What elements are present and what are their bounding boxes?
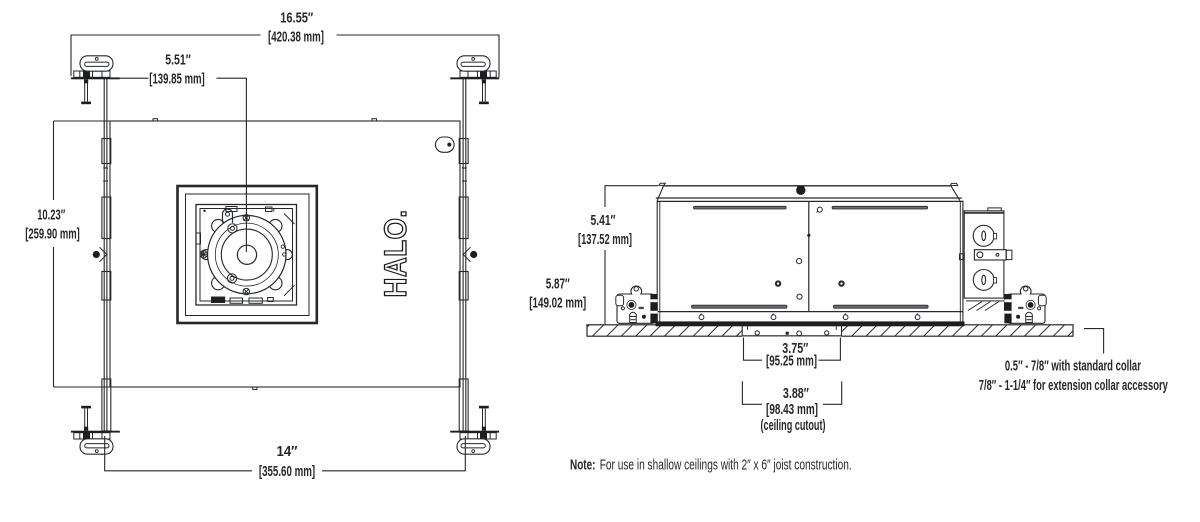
svg-text:[95.25 mm]: [95.25 mm]	[766, 352, 817, 369]
svg-text:10.23″: 10.23″	[37, 207, 65, 224]
svg-text:[259.90 mm]: [259.90 mm]	[25, 226, 80, 243]
svg-text:[149.02 mm]: [149.02 mm]	[529, 295, 586, 312]
svg-text:[420.38 mm]: [420.38 mm]	[268, 28, 324, 45]
svg-text:Note:For use in shallow ceilin: Note:For use in shallow ceilings with 2″…	[570, 457, 852, 474]
svg-text:3.88″: 3.88″	[783, 385, 809, 402]
svg-text:5.87″: 5.87″	[546, 276, 570, 293]
svg-text:[139.85 mm]: [139.85 mm]	[149, 71, 205, 88]
svg-text:0.5″ - 7/8″ with standard coll: 0.5″ - 7/8″ with standard collar	[1005, 358, 1141, 375]
svg-text:7/8″ - 1-1/4″ for extension co: 7/8″ - 1-1/4″ for extension collar acces…	[979, 377, 1168, 394]
svg-text:[98.43 mm]: [98.43 mm]	[766, 401, 818, 418]
svg-text:14″: 14″	[277, 443, 298, 460]
svg-text:16.55″: 16.55″	[280, 10, 313, 27]
svg-text:(ceiling cutout): (ceiling cutout)	[761, 417, 826, 434]
svg-text:5.51″: 5.51″	[165, 51, 191, 68]
svg-text:5.41″: 5.41″	[591, 212, 616, 229]
svg-text:HALO.: HALO.	[377, 210, 413, 298]
svg-text:[355.60 mm]: [355.60 mm]	[259, 463, 315, 480]
svg-text:[137.52 mm]: [137.52 mm]	[578, 231, 632, 248]
